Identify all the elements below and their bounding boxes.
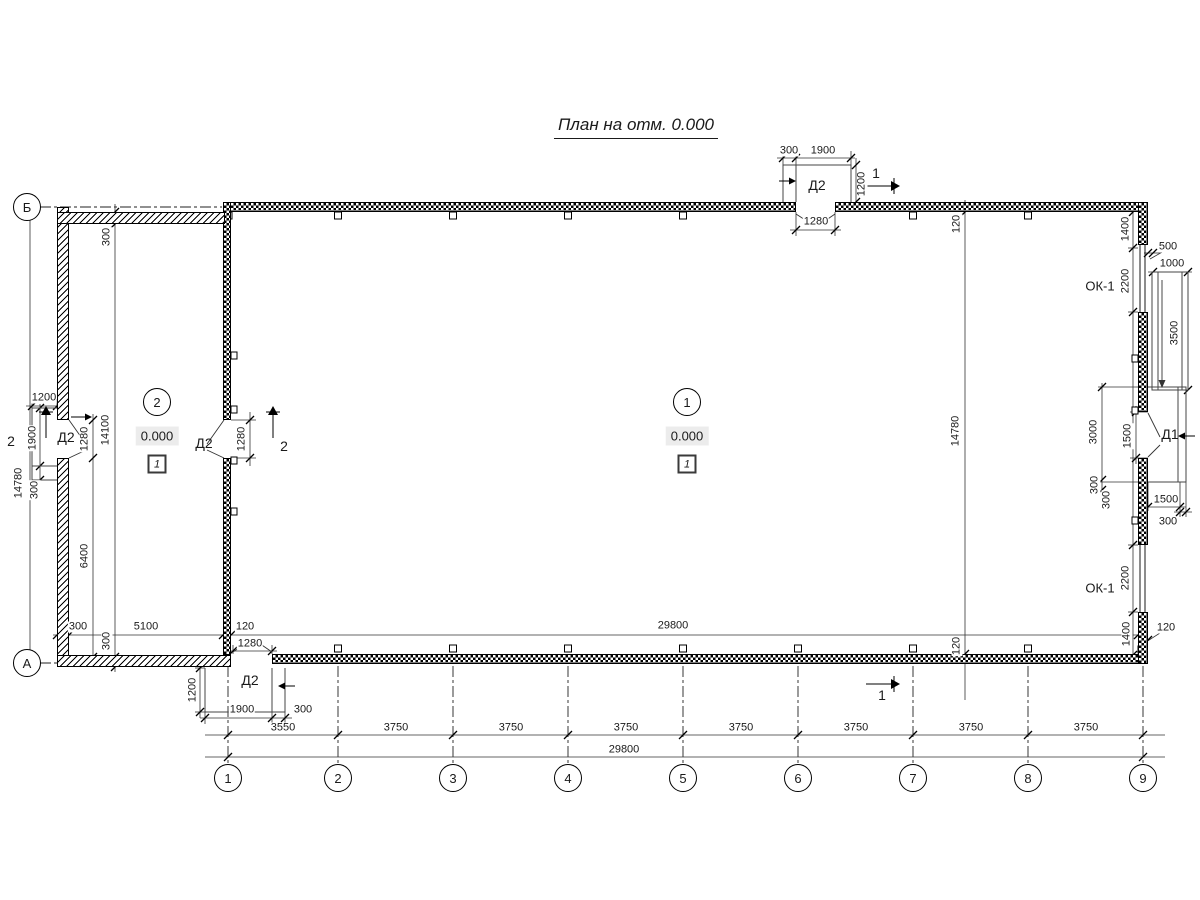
dim-window-to-corner: 1400 <box>1122 621 1133 647</box>
annex-wall-left-upper <box>57 207 69 420</box>
floor-type-annex: 1 <box>148 455 167 474</box>
dim-ramp-width: 1000 <box>1159 259 1185 270</box>
axis-row-b: Б <box>13 193 41 221</box>
annex-wall-top <box>57 212 225 224</box>
window-frames <box>1140 245 1145 612</box>
dim-corner-to-window: 1400 <box>1121 216 1132 242</box>
floor-plan-drawing: План на отм. 0.000 1 0.000 1 2 0.000 1 Д… <box>0 0 1200 900</box>
dim-annex-wall-left: 300 <box>68 622 88 633</box>
section-label-1-bottom: 1 <box>877 688 887 702</box>
dim-ramp-length: 3500 <box>1170 320 1181 346</box>
axis-col-7: 7 <box>899 764 927 792</box>
door-label-d2-partition: Д2 <box>194 436 213 450</box>
dim-annex-wall-bottom: 300 <box>102 631 113 651</box>
dim-inner-width: 29800 <box>657 621 690 632</box>
dim-d1-porch-height: 3000 <box>1089 419 1100 445</box>
dim-top-door-width: 1900 <box>810 146 836 157</box>
dim-bay-7: 3750 <box>958 723 984 734</box>
dim-bottom-door-offset: 300 <box>293 705 313 716</box>
dim-annex-below-door: 6400 <box>80 543 91 569</box>
dim-d1-offset-b: 300 <box>1102 490 1113 510</box>
dim-bay-3: 3750 <box>498 723 524 734</box>
door-label-d2-top: Д2 <box>807 178 826 192</box>
axis-col-5: 5 <box>669 764 697 792</box>
wall-right-segment-1 <box>1138 202 1148 245</box>
dim-annex-partition: 120 <box>235 622 255 633</box>
door-label-d2-bottom: Д2 <box>240 673 259 687</box>
dim-bay-4: 3750 <box>613 723 639 734</box>
dim-top-door-depth: 1200 <box>857 171 868 197</box>
axis-col-3: 3 <box>439 764 467 792</box>
dim-bay-2: 3750 <box>383 723 409 734</box>
dim-panel-top: 120 <box>952 214 963 234</box>
dim-ramp-offset: 500 <box>1158 242 1178 253</box>
dim-bay-8: 3750 <box>1073 723 1099 734</box>
window-ok1-bottom <box>1140 545 1145 612</box>
dim-bay-5: 3750 <box>728 723 754 734</box>
dim-bottom-door-width: 1900 <box>229 705 255 716</box>
door-label-d1: Д1 <box>1160 427 1179 441</box>
dim-d1-porch-offset: 300 <box>1158 517 1178 528</box>
dim-bay-6: 3750 <box>843 723 869 734</box>
section-label-2-partition: 2 <box>279 439 289 453</box>
dim-overall-height-left: 14780 <box>14 467 25 500</box>
partition-wall-upper <box>223 202 231 420</box>
drawing-title: План на отм. 0.000 <box>554 115 718 139</box>
wall-right-segment-2 <box>1138 312 1148 412</box>
room-number-annex: 2 <box>143 388 171 416</box>
axis-col-8: 8 <box>1014 764 1042 792</box>
dim-partition-door-opening: 1280 <box>237 426 248 452</box>
partition-wall-lower <box>223 458 231 655</box>
dim-annex-wall-top: 300 <box>102 227 113 247</box>
dim-top-door-offset: 300 <box>779 146 799 157</box>
axis-col-1: 1 <box>214 764 242 792</box>
elevation-mark-hall: 0.000 <box>666 427 709 446</box>
door-label-d2-left: Д2 <box>56 430 75 444</box>
room-number-hall: 1 <box>673 388 701 416</box>
dim-window-height-top: 2200 <box>1121 268 1132 294</box>
wall-right-segment-4 <box>1138 612 1148 664</box>
window-ok1-top <box>1140 245 1145 312</box>
axis-grid-lines <box>40 207 1143 765</box>
section-label-1-top: 1 <box>871 166 881 180</box>
section-label-2-left: 2 <box>6 434 16 448</box>
wall-top-left-segment <box>225 202 796 212</box>
dim-annex-inner-height: 14100 <box>101 414 112 447</box>
wall-top-right-segment <box>835 202 1148 212</box>
door-leader-lines <box>69 214 1160 652</box>
dim-panel-bottom: 120 <box>952 636 963 656</box>
dim-d1-porch-width: 1500 <box>1153 495 1179 506</box>
dim-d1-opening: 1500 <box>1123 423 1134 449</box>
window-label-ok1-bottom: ОК-1 <box>1084 582 1115 595</box>
dimension-ticks <box>26 154 1192 761</box>
axis-col-4: 4 <box>554 764 582 792</box>
elevation-mark-annex: 0.000 <box>136 427 179 446</box>
wall-bottom-segment <box>272 654 1148 664</box>
annex-wall-left-lower <box>57 458 69 667</box>
dim-left-door-depth: 1200 <box>31 393 57 404</box>
dim-annex-inner-width: 5100 <box>133 622 159 633</box>
floor-type-hall: 1 <box>678 455 697 474</box>
ramp-direction-arrow <box>1159 280 1166 388</box>
axis-col-2: 2 <box>324 764 352 792</box>
window-label-ok1-top: ОК-1 <box>1084 280 1115 293</box>
dim-d1-offset-a: 300 <box>1090 475 1101 495</box>
dim-overall-height-inner: 14780 <box>951 415 962 448</box>
dim-left-door-width: 1900 <box>28 425 39 451</box>
dim-left-door-offset: 300 <box>30 480 41 500</box>
dim-left-door-opening: 1280 <box>80 426 91 452</box>
dim-bay-1: 3550 <box>270 723 296 734</box>
dim-bottom-door-depth: 1200 <box>188 677 199 703</box>
wall-right-segment-3 <box>1138 458 1148 545</box>
dim-bottom-door-opening: 1280 <box>237 639 263 650</box>
dim-total-width: 29800 <box>608 745 641 756</box>
dim-top-door-opening: 1280 <box>803 217 829 228</box>
dim-right-wall-panel: 120 <box>1156 623 1176 634</box>
axis-col-9: 9 <box>1129 764 1157 792</box>
axis-row-a: А <box>13 649 41 677</box>
dim-window-height-bottom: 2200 <box>1121 565 1132 591</box>
axis-col-6: 6 <box>784 764 812 792</box>
annex-wall-bottom <box>57 655 231 667</box>
